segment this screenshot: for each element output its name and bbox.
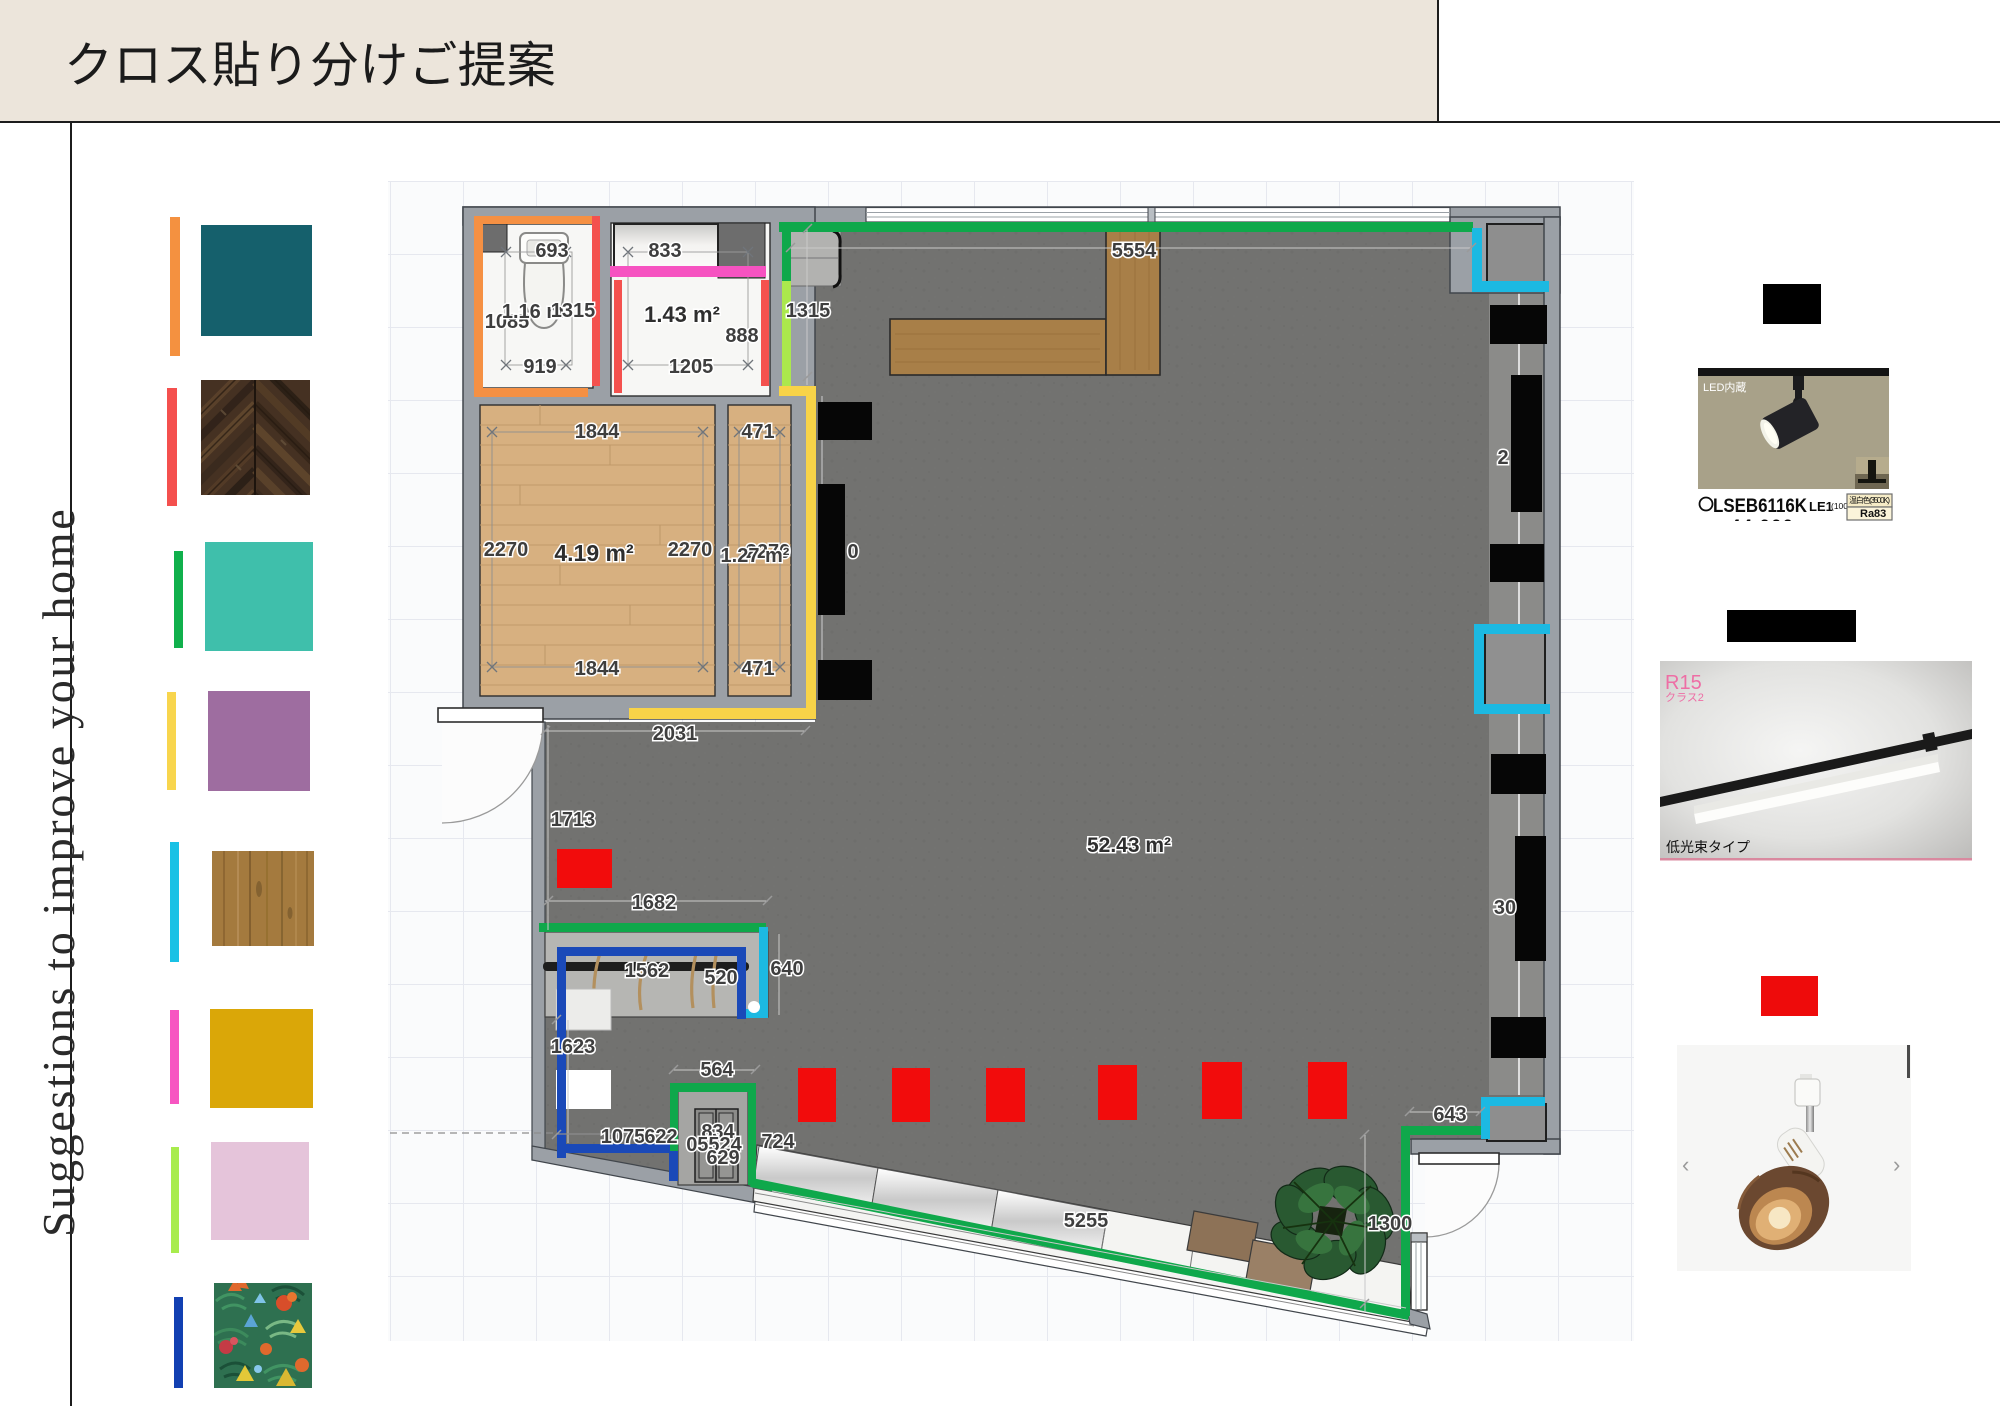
svg-text:471: 471 [741,421,774,443]
svg-text:1315: 1315 [786,300,831,322]
svg-text:LSEB6116K: LSEB6116K [1713,496,1807,517]
svg-text:2270: 2270 [668,539,713,561]
svg-text:低光束タイプ: 低光束タイプ [1666,839,1750,855]
svg-text:0: 0 [847,541,858,563]
svg-text:622: 622 [644,1126,677,1148]
svg-text:1.43 m²: 1.43 m² [644,302,720,327]
svg-text:Ra83: Ra83 [1860,508,1886,520]
svg-text:30: 30 [1494,897,1516,919]
svg-text:1.27 m²: 1.27 m² [721,545,790,567]
svg-text:888: 888 [725,325,758,347]
svg-text:520: 520 [704,967,737,989]
svg-text:1315: 1315 [551,300,596,322]
svg-text:1844: 1844 [575,658,620,680]
svg-text:1205: 1205 [669,356,714,378]
svg-text:‹: ‹ [1682,1152,1689,1177]
svg-text:833: 833 [648,240,681,262]
svg-text:1844: 1844 [575,421,620,443]
svg-text:›: › [1893,1152,1900,1177]
svg-text:724: 724 [761,1131,795,1153]
svg-text:629: 629 [706,1147,739,1169]
svg-text:1562: 1562 [625,960,670,982]
svg-text:クラス2: クラス2 [1665,691,1704,704]
svg-text:4.19 m²: 4.19 m² [554,540,634,566]
svg-text:2270: 2270 [484,539,529,561]
svg-text:5255: 5255 [1064,1210,1109,1232]
svg-text:640: 640 [770,958,803,980]
svg-text:44.000: 44.000 [1730,517,1794,538]
svg-text:1623: 1623 [551,1036,596,1058]
svg-text:919: 919 [523,356,556,378]
svg-text:1075: 1075 [601,1126,646,1148]
svg-text:1682: 1682 [632,892,677,914]
svg-text:471: 471 [741,658,774,680]
svg-text:1713: 1713 [551,809,596,831]
svg-text:1300: 1300 [1368,1213,1413,1235]
svg-text:564: 564 [700,1059,734,1081]
svg-text:LE1: LE1 [1809,499,1833,514]
svg-text:2: 2 [1497,447,1508,469]
svg-text:643: 643 [1433,1104,1466,1126]
svg-text:温白色(3500K): 温白色(3500K) [1849,495,1890,505]
svg-text:5554: 5554 [1112,240,1157,262]
svg-text:52.43 m²: 52.43 m² [1087,834,1171,857]
svg-text:693: 693 [535,240,568,262]
svg-text:2031: 2031 [653,723,698,745]
svg-text:LED内蔵: LED内蔵 [1703,380,1746,394]
svg-text:R15: R15 [1665,672,1702,694]
